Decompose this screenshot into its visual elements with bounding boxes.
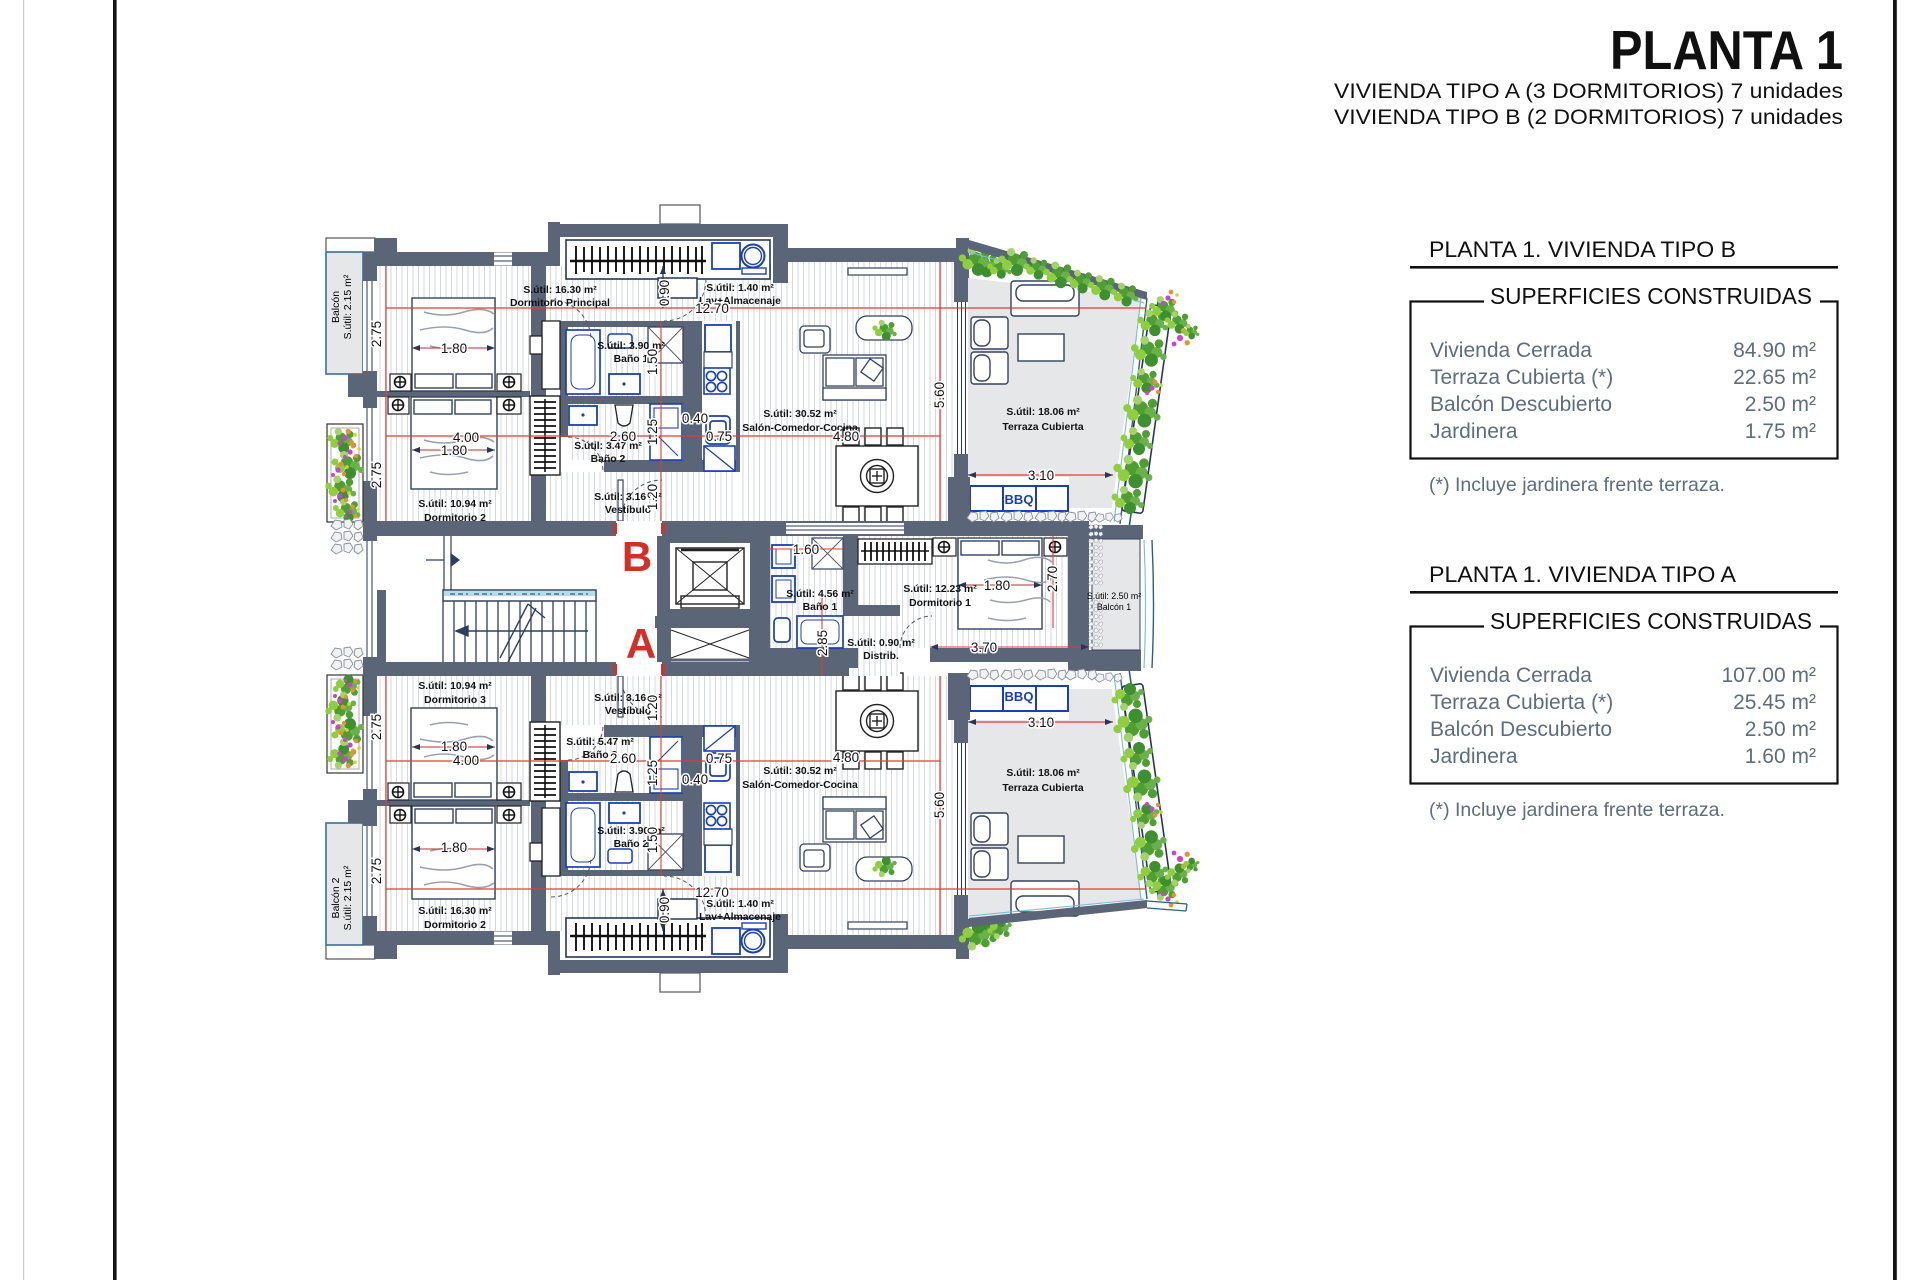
svg-text:107.00 m²: 107.00 m² xyxy=(1721,664,1816,687)
svg-text:12.70: 12.70 xyxy=(695,301,729,316)
svg-text:S.útil: 2.50 m²: S.útil: 2.50 m² xyxy=(1087,591,1141,601)
svg-text:PLANTA 1. VIVIENDA TIPO B: PLANTA 1. VIVIENDA TIPO B xyxy=(1429,237,1736,262)
svg-text:BBQ: BBQ xyxy=(1005,689,1034,704)
svg-text:0.90: 0.90 xyxy=(657,897,672,923)
svg-text:PLANTA 1: PLANTA 1 xyxy=(1610,19,1843,81)
svg-text:3.10: 3.10 xyxy=(1028,468,1054,483)
svg-text:Dormitorio Principal: Dormitorio Principal xyxy=(510,298,610,309)
svg-text:(*) Incluye jardinera frente t: (*) Incluye jardinera frente terraza. xyxy=(1429,799,1725,821)
svg-text:3.70: 3.70 xyxy=(971,640,997,655)
svg-text:0.90: 0.90 xyxy=(657,280,672,306)
svg-text:S.útil: 10.94 m²: S.útil: 10.94 m² xyxy=(418,681,492,692)
svg-text:S.útil: 30.52 m²: S.útil: 30.52 m² xyxy=(763,766,837,777)
svg-text:S.útil: 10.94 m²: S.útil: 10.94 m² xyxy=(418,499,492,510)
svg-text:Terraza Cubierta (*): Terraza Cubierta (*) xyxy=(1430,691,1613,714)
svg-text:1.75 m²: 1.75 m² xyxy=(1745,420,1816,443)
svg-text:Baño 1: Baño 1 xyxy=(803,602,838,613)
svg-text:22.65 m²: 22.65 m² xyxy=(1733,366,1816,389)
svg-text:S.útil: 5.47 m²: S.útil: 5.47 m² xyxy=(566,737,634,748)
svg-text:25.45 m²: 25.45 m² xyxy=(1733,691,1816,714)
svg-text:5.60: 5.60 xyxy=(932,382,947,408)
svg-text:S.útil: 18.06 m²: S.útil: 18.06 m² xyxy=(1006,407,1080,418)
svg-text:1.20: 1.20 xyxy=(645,695,660,721)
svg-text:Dormitorio 2: Dormitorio 2 xyxy=(424,513,486,524)
svg-text:1.60: 1.60 xyxy=(793,542,819,557)
svg-text:Jardinera: Jardinera xyxy=(1430,420,1518,443)
svg-text:Dormitorio 3: Dormitorio 3 xyxy=(424,695,486,706)
svg-text:Vivienda Cerrada: Vivienda Cerrada xyxy=(1430,339,1592,362)
svg-text:2.75: 2.75 xyxy=(369,462,384,488)
svg-text:1.60 m²: 1.60 m² xyxy=(1745,745,1816,768)
svg-text:0.75: 0.75 xyxy=(706,429,732,444)
svg-text:S.útil: 4.56 m²: S.útil: 4.56 m² xyxy=(786,589,854,600)
svg-text:2.75: 2.75 xyxy=(369,858,384,884)
svg-text:0.40: 0.40 xyxy=(682,411,708,426)
svg-text:SUPERFICIES CONSTRUIDAS: SUPERFICIES CONSTRUIDAS xyxy=(1490,283,1812,309)
svg-text:Jardinera: Jardinera xyxy=(1430,745,1518,768)
svg-text:Balcón 2: Balcón 2 xyxy=(330,877,342,918)
svg-text:Terraza Cubierta (*): Terraza Cubierta (*) xyxy=(1430,366,1613,389)
svg-text:Distrib.: Distrib. xyxy=(863,651,899,662)
svg-text:Baño 2: Baño 2 xyxy=(591,454,626,465)
svg-text:2.60: 2.60 xyxy=(610,751,636,766)
svg-text:Balcón: Balcón xyxy=(330,291,342,323)
svg-text:1.80: 1.80 xyxy=(984,578,1010,593)
svg-text:Balcón 1: Balcón 1 xyxy=(1097,602,1131,612)
svg-text:0.40: 0.40 xyxy=(682,772,708,787)
svg-text:2.85: 2.85 xyxy=(815,630,830,656)
svg-text:Lav+Almacenaje: Lav+Almacenaje xyxy=(699,912,781,923)
svg-text:1.80: 1.80 xyxy=(441,840,467,855)
svg-text:1.50: 1.50 xyxy=(645,827,660,853)
svg-text:B: B xyxy=(622,533,652,580)
svg-text:Terraza Cubierta: Terraza Cubierta xyxy=(1002,783,1083,794)
svg-text:S.útil: 30.52 m²: S.útil: 30.52 m² xyxy=(763,409,837,420)
svg-text:Balcón Descubierto: Balcón Descubierto xyxy=(1430,393,1612,416)
svg-text:Dormitorio 2: Dormitorio 2 xyxy=(424,920,486,931)
svg-text:Dormitorio 1: Dormitorio 1 xyxy=(909,598,971,609)
svg-text:VIVIENDA TIPO B (2 DORMITORIOS: VIVIENDA TIPO B (2 DORMITORIOS) 7 unidad… xyxy=(1334,105,1843,129)
svg-text:S.útil: 2.15 m²: S.útil: 2.15 m² xyxy=(342,274,354,339)
svg-text:2.75: 2.75 xyxy=(369,714,384,740)
svg-text:1.20: 1.20 xyxy=(645,484,660,510)
svg-text:3.10: 3.10 xyxy=(1028,715,1054,730)
svg-text:4.00: 4.00 xyxy=(453,753,479,768)
svg-text:S.útil: 2.15 m²: S.útil: 2.15 m² xyxy=(342,865,354,930)
svg-text:A: A xyxy=(626,620,656,667)
svg-text:1.25: 1.25 xyxy=(645,419,660,445)
svg-text:SUPERFICIES CONSTRUIDAS: SUPERFICIES CONSTRUIDAS xyxy=(1490,608,1812,634)
svg-text:Baño 1: Baño 1 xyxy=(614,354,649,365)
svg-text:4.80: 4.80 xyxy=(833,429,859,444)
svg-text:84.90 m²: 84.90 m² xyxy=(1733,339,1816,362)
svg-text:1.50: 1.50 xyxy=(645,349,660,375)
svg-text:1.25: 1.25 xyxy=(645,760,660,786)
svg-text:Baño 2: Baño 2 xyxy=(614,839,649,850)
svg-text:Salón-Comedor-Cocina: Salón-Comedor-Cocina xyxy=(742,780,858,791)
svg-text:(*) Incluye jardinera frente t: (*) Incluye jardinera frente terraza. xyxy=(1429,474,1725,496)
svg-text:S.útil: 12.23 m²: S.útil: 12.23 m² xyxy=(903,584,977,595)
svg-text:4.80: 4.80 xyxy=(833,750,859,765)
svg-text:S.útil: 0.90 m²: S.útil: 0.90 m² xyxy=(847,638,915,649)
svg-text:2.75: 2.75 xyxy=(369,321,384,347)
svg-text:VIVIENDA TIPO A (3 DORMITORIOS: VIVIENDA TIPO A (3 DORMITORIOS) 7 unidad… xyxy=(1334,79,1843,103)
svg-text:Balcón Descubierto: Balcón Descubierto xyxy=(1430,718,1612,741)
svg-text:2.70: 2.70 xyxy=(1045,566,1060,592)
svg-text:1.80: 1.80 xyxy=(441,341,467,356)
svg-text:PLANTA 1. VIVIENDA TIPO A: PLANTA 1. VIVIENDA TIPO A xyxy=(1429,562,1736,587)
svg-text:S.útil: 16.30 m²: S.útil: 16.30 m² xyxy=(523,285,597,296)
svg-text:S.útil: 1.40 m²: S.útil: 1.40 m² xyxy=(706,899,774,910)
svg-text:0.75: 0.75 xyxy=(706,751,732,766)
svg-text:2.50 m²: 2.50 m² xyxy=(1745,393,1816,416)
svg-text:5.60: 5.60 xyxy=(932,792,947,818)
svg-text:2.60: 2.60 xyxy=(610,429,636,444)
svg-text:12.70: 12.70 xyxy=(695,885,729,900)
svg-text:BBQ: BBQ xyxy=(1005,492,1034,507)
svg-text:Vivienda Cerrada: Vivienda Cerrada xyxy=(1430,664,1592,687)
svg-text:Terraza Cubierta: Terraza Cubierta xyxy=(1002,422,1083,433)
svg-text:S.útil: 16.30 m²: S.útil: 16.30 m² xyxy=(418,906,492,917)
svg-text:1.80: 1.80 xyxy=(441,739,467,754)
svg-text:1.80: 1.80 xyxy=(441,443,467,458)
svg-text:S.útil: 1.40 m²: S.útil: 1.40 m² xyxy=(706,283,774,294)
svg-text:2.50 m²: 2.50 m² xyxy=(1745,718,1816,741)
svg-text:S.útil: 18.06 m²: S.útil: 18.06 m² xyxy=(1006,768,1080,779)
